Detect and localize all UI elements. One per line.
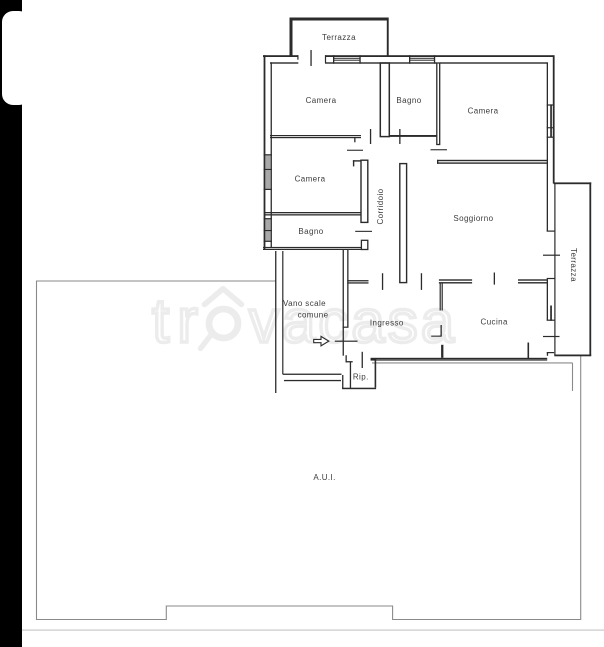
svg-text:A.U.I.: A.U.I. <box>313 473 335 482</box>
svg-text:vacasa: vacasa <box>249 288 457 355</box>
svg-text:Camera: Camera <box>295 174 326 183</box>
svg-text:Cucina: Cucina <box>481 318 508 327</box>
svg-text:Camera: Camera <box>468 106 499 115</box>
svg-text:Bagno: Bagno <box>298 227 323 236</box>
svg-text:Bagno: Bagno <box>396 96 421 105</box>
svg-text:Terrazza: Terrazza <box>569 248 578 282</box>
svg-text:comune: comune <box>298 310 329 319</box>
svg-text:Corridoio: Corridoio <box>376 188 385 224</box>
svg-text:Ingresso: Ingresso <box>370 318 404 327</box>
svg-text:Rip.: Rip. <box>353 373 369 382</box>
svg-text:tr: tr <box>152 287 206 356</box>
svg-text:Soggiorno: Soggiorno <box>453 214 493 223</box>
svg-text:Vano scale: Vano scale <box>283 299 326 308</box>
svg-text:Camera: Camera <box>306 96 337 105</box>
svg-text:Terrazza: Terrazza <box>322 33 356 42</box>
